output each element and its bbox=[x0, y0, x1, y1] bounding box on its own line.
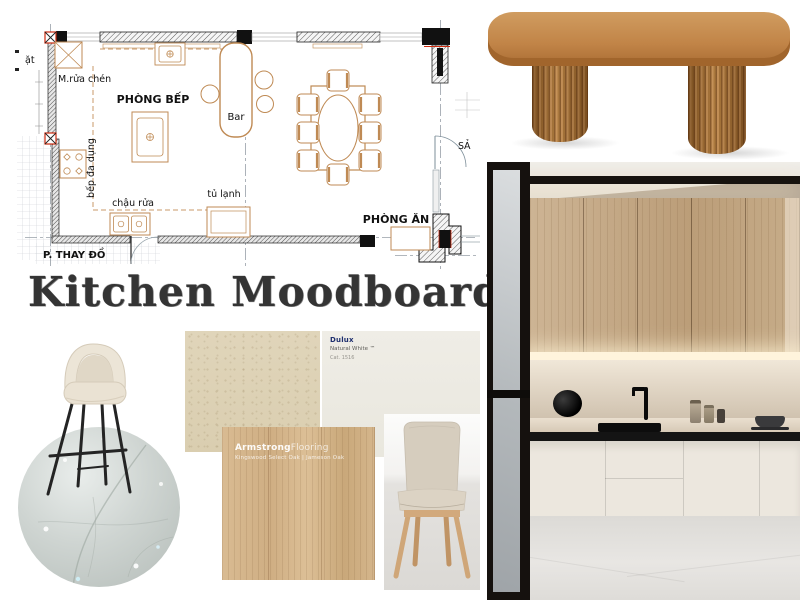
plan-label-sink: chậu rửa bbox=[112, 198, 154, 209]
kitchen-upper-cabinets bbox=[530, 198, 800, 354]
kitchen-window-mullion bbox=[487, 390, 530, 398]
kitchen-window-glass bbox=[493, 170, 520, 592]
plan-label-fridge: tủ lạnh bbox=[207, 189, 240, 200]
dulux-color-name: Natural White ™ bbox=[330, 346, 480, 352]
bar-stool-photo bbox=[38, 338, 148, 506]
dulux-color-code: Cat. 1516 bbox=[330, 355, 480, 361]
flooring-brand-label: ArmstrongFlooring bbox=[235, 443, 375, 453]
dining-chair-photo bbox=[384, 414, 480, 590]
kitchen-undercabinet-light bbox=[530, 352, 800, 360]
plan-label-laundry: ặt bbox=[25, 55, 35, 66]
decor-black-disc bbox=[553, 390, 582, 417]
kitchen-photo bbox=[487, 162, 800, 600]
cabinet-seam bbox=[605, 441, 606, 520]
plan-label-kitchen-room: PHÒNG BẾP bbox=[117, 91, 190, 106]
decor-plate bbox=[751, 427, 789, 430]
floor-tile-seam bbox=[627, 554, 800, 577]
table-leg-right bbox=[688, 52, 746, 154]
decor-jar bbox=[704, 405, 714, 423]
page-title: Kitchen Moodboard bbox=[28, 268, 498, 316]
faucet-tip bbox=[632, 390, 635, 396]
flooring-brand-light: Flooring bbox=[291, 443, 329, 453]
kitchen-window-frame bbox=[487, 162, 530, 600]
decor-jar bbox=[717, 409, 725, 423]
dining-chair bbox=[384, 414, 480, 590]
plan-label-dining-room: PHÒNG ĂN bbox=[363, 213, 429, 226]
flooring-brand-bold: Armstrong bbox=[235, 443, 291, 453]
cabinet-seam bbox=[683, 441, 684, 520]
sink bbox=[598, 423, 661, 432]
kitchen-side-panel bbox=[785, 198, 800, 358]
moodboard-canvas: ặt M.rửa chén PHÒNG BẾP Bar bếp đa dụng … bbox=[0, 0, 800, 600]
flooring-sample: ArmstrongFlooring Kingswood Select Oak |… bbox=[222, 427, 375, 580]
flooring-caption: Kingswood Select Oak | Jameson Oak bbox=[235, 455, 375, 461]
table-top-surface bbox=[488, 12, 790, 58]
drawer-seam bbox=[605, 478, 683, 479]
kitchen-floor bbox=[487, 516, 800, 600]
floor-plan: ặt M.rửa chén PHÒNG BẾP Bar bếp đa dụng … bbox=[15, 8, 480, 270]
plan-label-bar: Bar bbox=[227, 112, 245, 123]
dining-table-photo bbox=[480, 2, 798, 158]
cabinet-seam bbox=[759, 441, 760, 520]
faucet bbox=[644, 387, 648, 420]
bar-stool-legs bbox=[48, 404, 130, 494]
kitchen-counter-edge bbox=[523, 432, 800, 441]
chair-upholstery bbox=[398, 422, 466, 517]
bar-stool-seat bbox=[64, 344, 126, 404]
plan-label-dishwasher: M.rửa chén bbox=[58, 74, 111, 85]
decor-jar bbox=[690, 400, 701, 423]
chair-legs bbox=[396, 516, 468, 576]
kitchen-cove-light bbox=[487, 176, 800, 184]
kitchen-base-cabinets bbox=[523, 441, 800, 520]
plan-label-hall: SẢ bbox=[458, 140, 471, 152]
plan-label-stove: bếp đa dụng bbox=[86, 138, 97, 198]
dulux-brand-label: Dulux bbox=[330, 336, 480, 344]
